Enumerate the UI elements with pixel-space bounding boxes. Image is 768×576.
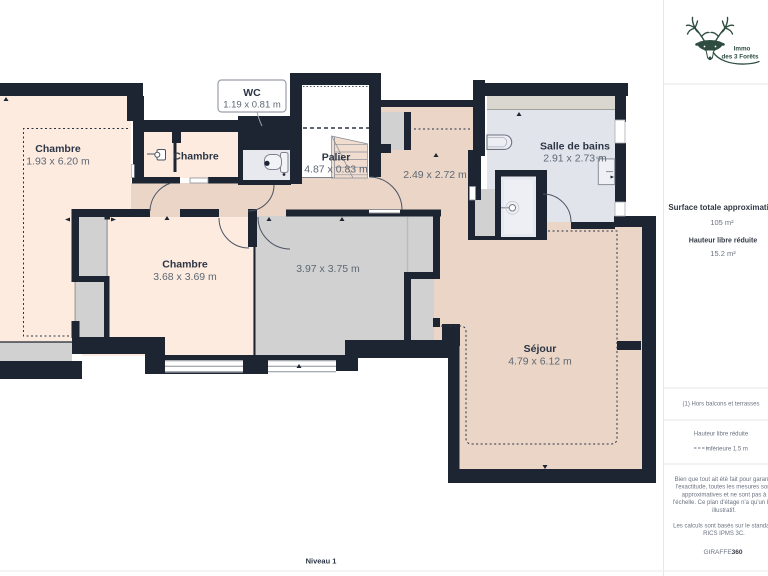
svg-text:105 m²: 105 m² <box>710 218 734 227</box>
svg-text:Immo: Immo <box>734 46 751 53</box>
svg-text:l'échelle. Ce plan d'étage n'a: l'échelle. Ce plan d'étage n'a qu'un but <box>673 500 768 506</box>
svg-text:illustratif.: illustratif. <box>712 508 736 514</box>
svg-text:Surface totale approximative: Surface totale approximative <box>668 203 768 212</box>
svg-text:2.91 x 2.73 m: 2.91 x 2.73 m <box>543 153 607 165</box>
svg-text:RICS IPMS 3C.: RICS IPMS 3C. <box>703 531 745 537</box>
svg-text:Chambre: Chambre <box>162 259 208 271</box>
svg-text:Hauteur libre réduite: Hauteur libre réduite <box>689 238 758 245</box>
svg-text:(1) Hors balcons et terrasses: (1) Hors balcons et terrasses <box>682 402 759 408</box>
svg-text:Salle de bains: Salle de bains <box>540 141 610 153</box>
svg-text:inférieure 1.5 m: inférieure 1.5 m <box>706 447 748 453</box>
svg-text:Chambre: Chambre <box>35 143 81 155</box>
svg-text:2.49 x 2.72 m: 2.49 x 2.72 m <box>403 169 467 181</box>
svg-text:4.87 x 0.83 m: 4.87 x 0.83 m <box>304 164 368 176</box>
svg-text:1.93 x 6.20 m: 1.93 x 6.20 m <box>26 156 90 168</box>
svg-text:15.2 m²: 15.2 m² <box>710 249 736 258</box>
svg-text:WC: WC <box>243 87 261 99</box>
svg-text:Les calculs sont basés sur le: Les calculs sont basés sur le standard <box>673 524 768 530</box>
svg-text:4.79 x 6.12 m: 4.79 x 6.12 m <box>508 356 572 368</box>
svg-text:3.97 x 3.75 m: 3.97 x 3.75 m <box>296 263 360 275</box>
svg-text:1.19 x 0.81 m: 1.19 x 0.81 m <box>223 100 281 111</box>
svg-text:Niveau 1: Niveau 1 <box>306 557 337 566</box>
svg-text:Hauteur libre réduite: Hauteur libre réduite <box>694 432 749 438</box>
svg-text:Palier: Palier <box>322 152 351 164</box>
svg-text:GIRAFFE360: GIRAFFE360 <box>703 549 742 556</box>
svg-text:Chambre: Chambre <box>173 151 219 163</box>
svg-text:Séjour: Séjour <box>524 343 557 355</box>
svg-text:l'exactitude, toutes les mesur: l'exactitude, toutes les mesures sont <box>676 485 768 491</box>
svg-text:approximatives et ne sont pas: approximatives et ne sont pas à <box>682 492 767 498</box>
svg-text:des 3 Forêts: des 3 Forêts <box>721 54 759 61</box>
svg-text:Bien que tout ait été fait pou: Bien que tout ait été fait pour garantir <box>675 477 768 483</box>
svg-text:3.68 x 3.69 m: 3.68 x 3.69 m <box>153 271 217 283</box>
